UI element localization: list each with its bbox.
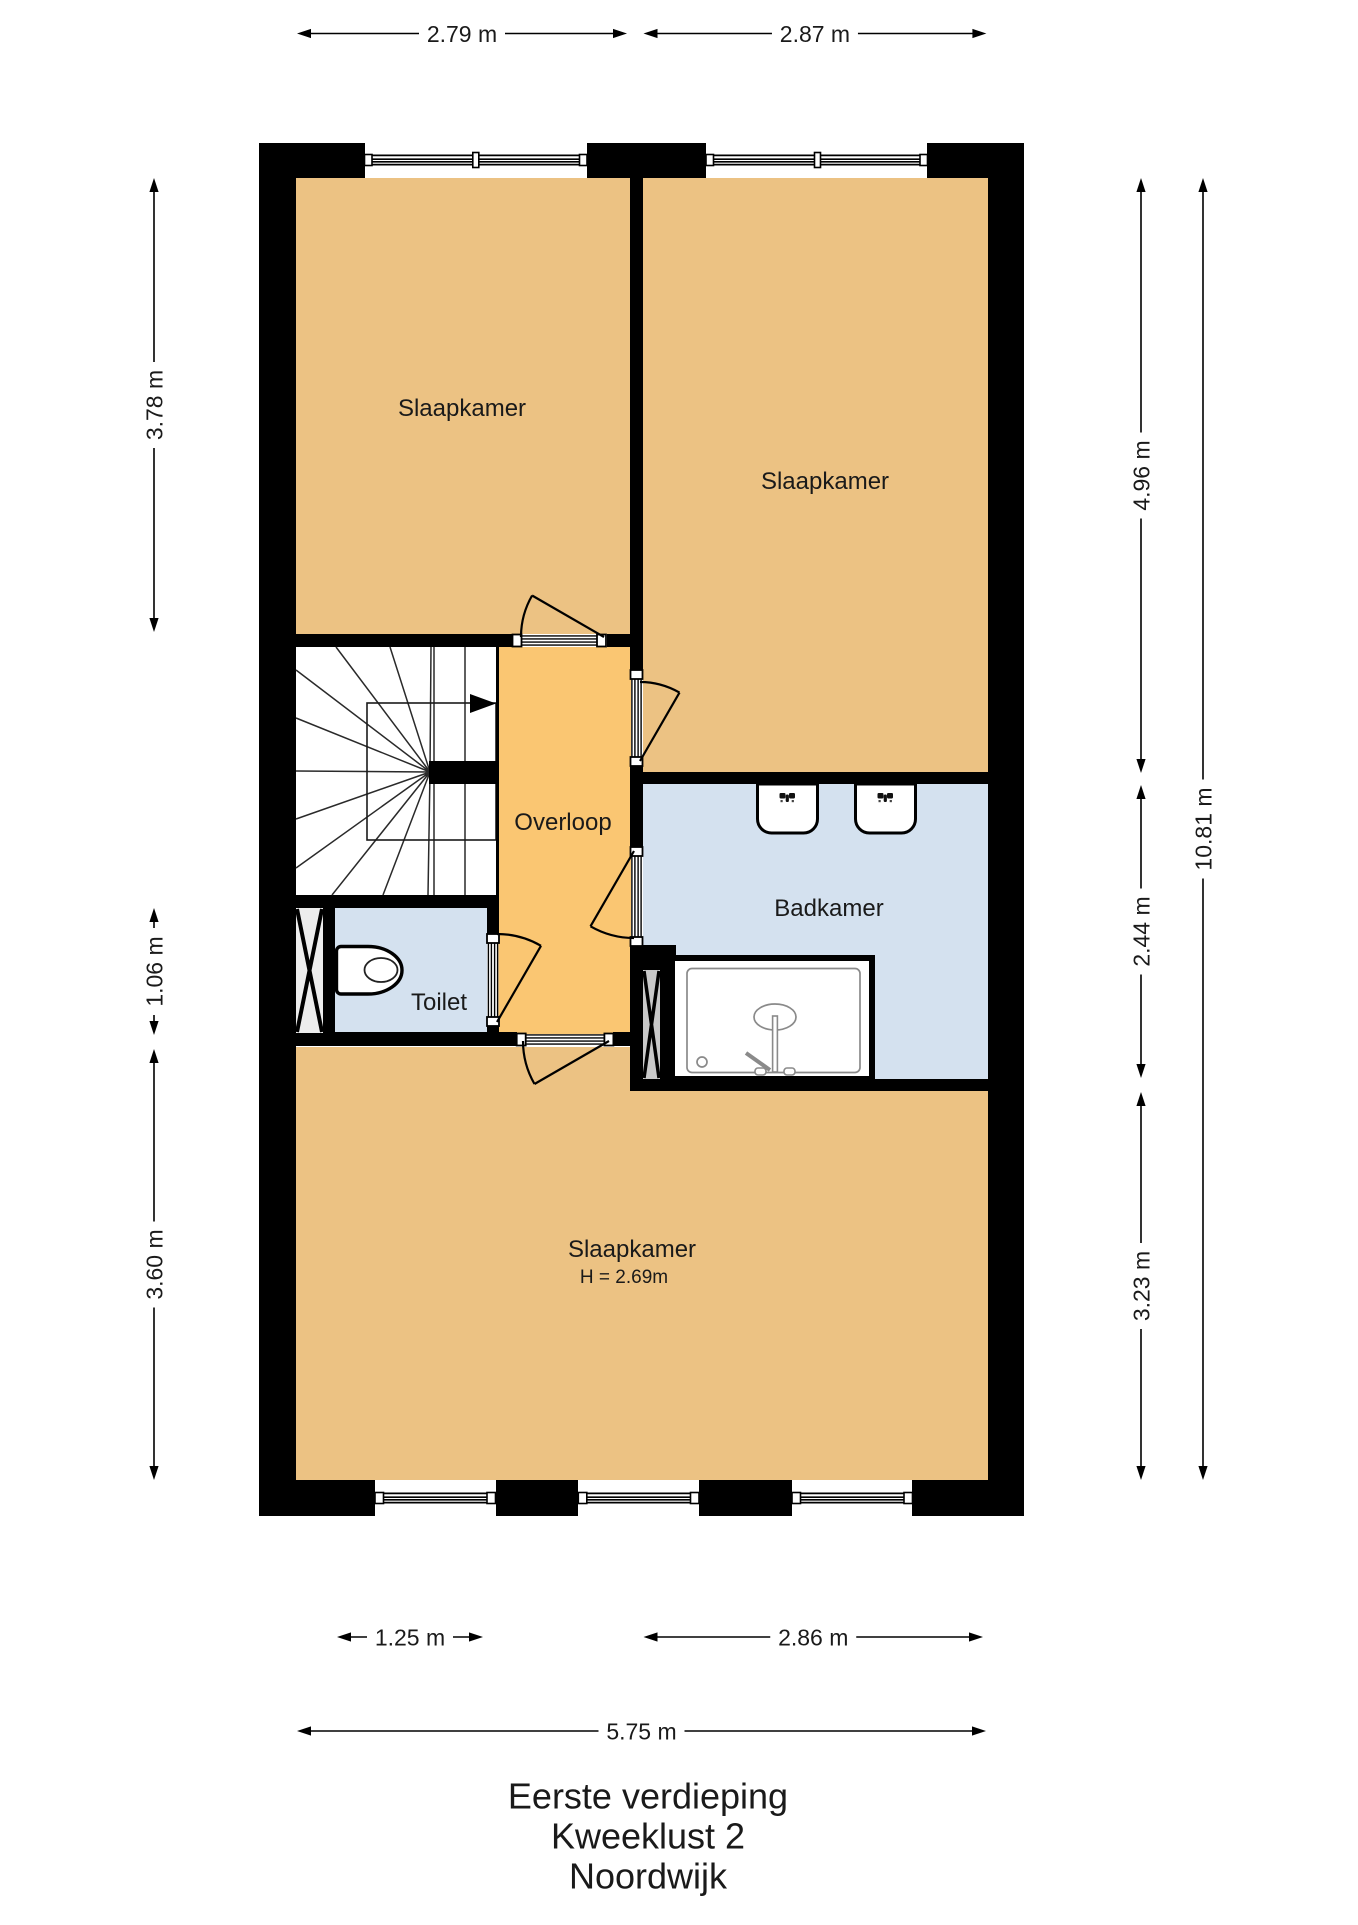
svg-text:5.75 m: 5.75 m <box>606 1718 676 1744</box>
svg-text:10.81 m: 10.81 m <box>1190 787 1216 870</box>
svg-text:Badkamer: Badkamer <box>774 895 883 922</box>
svg-text:2.44 m: 2.44 m <box>1128 896 1154 966</box>
svg-text:2.86 m: 2.86 m <box>778 1624 848 1650</box>
svg-text:1.06 m: 1.06 m <box>142 936 168 1006</box>
svg-text:Toilet: Toilet <box>411 989 467 1016</box>
svg-text:2.87 m: 2.87 m <box>780 21 850 47</box>
svg-text:3.78 m: 3.78 m <box>141 370 167 440</box>
svg-text:1.25 m: 1.25 m <box>375 1624 445 1650</box>
svg-text:Kweeklust 2: Kweeklust 2 <box>551 1816 745 1857</box>
svg-text:Noordwijk: Noordwijk <box>569 1856 728 1897</box>
svg-text:Slaapkamer: Slaapkamer <box>568 1236 696 1263</box>
svg-text:Slaapkamer: Slaapkamer <box>761 468 889 495</box>
svg-text:Overloop: Overloop <box>514 809 611 836</box>
svg-text:Slaapkamer: Slaapkamer <box>398 395 526 422</box>
svg-text:3.60 m: 3.60 m <box>141 1229 167 1299</box>
svg-text:H = 2.69m: H = 2.69m <box>580 1267 668 1288</box>
svg-text:2.79 m: 2.79 m <box>427 21 497 47</box>
svg-text:3.23 m: 3.23 m <box>1128 1251 1154 1321</box>
svg-text:4.96 m: 4.96 m <box>1128 440 1154 510</box>
svg-text:Eerste verdieping: Eerste verdieping <box>508 1776 788 1817</box>
